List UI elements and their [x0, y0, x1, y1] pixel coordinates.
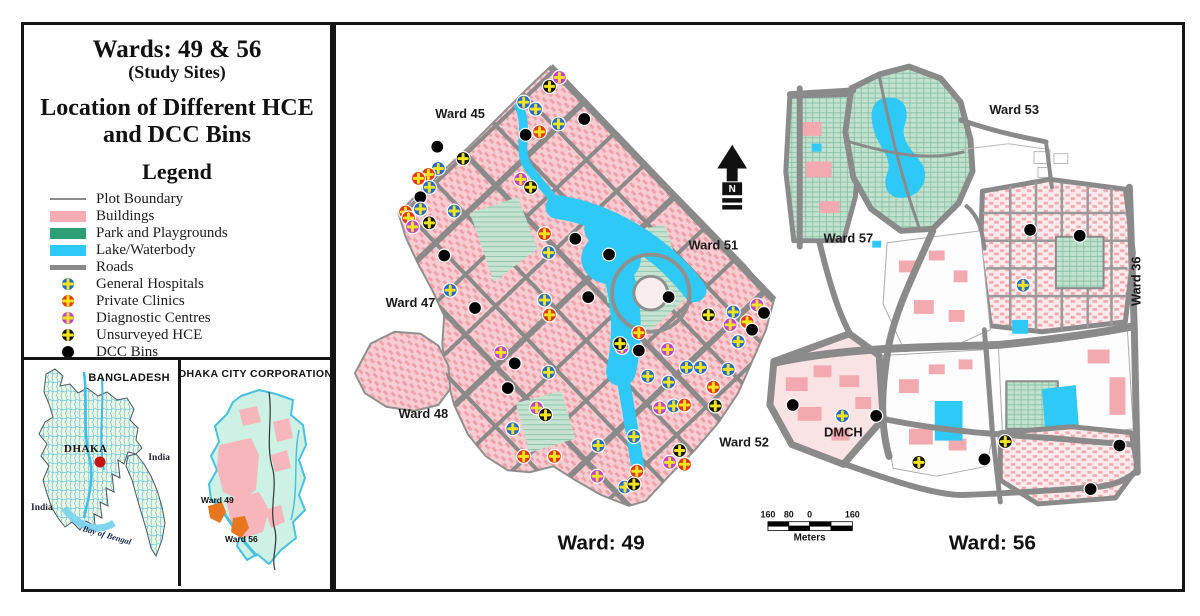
map-marker-uh: [912, 455, 926, 469]
map-marker-bin: [519, 128, 532, 141]
map-label: Ward 57: [824, 231, 874, 246]
legend-swatch-marker: [40, 276, 96, 292]
map-marker-dc: [663, 455, 677, 469]
map-marker-bin: [786, 399, 799, 412]
ward49-caption: Ward: 49: [558, 531, 645, 554]
map-marker-gh: [542, 246, 556, 260]
legend-heading: Legend: [24, 159, 330, 185]
map-marker-pc: [630, 464, 644, 478]
right-small-pond: [1012, 320, 1028, 334]
map-marker-bin: [578, 113, 591, 126]
map-marker-pc: [678, 457, 692, 471]
map-marker-gh: [443, 283, 457, 297]
india-label-right: India: [148, 453, 170, 463]
map-marker-dc: [661, 343, 675, 357]
map-marker-dc: [723, 318, 737, 332]
map-marker-gh: [529, 102, 543, 116]
north-arrow: N: [717, 145, 747, 210]
title-block: Wards: 49 & 56 (Study Sites) Location of…: [24, 37, 330, 185]
inset-dhaka-city: DHAKA CITY CORPORATION Ward 49 Ward 56: [181, 360, 330, 586]
crescent-road-inner: [634, 276, 668, 310]
legend-item: Lake/Waterbody: [24, 242, 330, 259]
map-marker-bin: [662, 291, 675, 304]
legend-label: Roads: [96, 259, 134, 276]
legend-item: Plot Boundary: [24, 191, 330, 208]
map-marker-pc: [533, 125, 547, 139]
map-marker-gh: [693, 360, 707, 374]
map-marker-gh: [641, 369, 655, 383]
legend-item: Buildings: [24, 208, 330, 225]
legend-item: Diagnostic Centres: [24, 310, 330, 327]
map-marker-bin: [582, 291, 595, 304]
map-label: DMCH: [824, 425, 863, 440]
map-marker-pc: [706, 380, 720, 394]
map-marker-uh: [524, 180, 538, 194]
map-marker-pc: [543, 308, 557, 322]
india-label-left: India: [31, 503, 53, 513]
legend-label: Lake/Waterbody: [96, 242, 196, 259]
legend-label: Buildings: [96, 208, 154, 225]
bangladesh-title: BANGLADESH: [88, 372, 170, 384]
map-marker-pc: [632, 326, 646, 340]
scalebar-tick: 80: [784, 510, 794, 520]
map-marker-uh: [422, 216, 436, 230]
map-marker-uh: [708, 399, 722, 413]
map-figure: Wards: 49 & 56 (Study Sites) Location of…: [0, 0, 1200, 616]
map-marker-pc: [678, 398, 692, 412]
map-marker-uh: [701, 308, 715, 322]
map-marker-gh: [591, 439, 605, 453]
legend-label: Park and Playgrounds: [96, 225, 228, 242]
legend-label: Plot Boundary: [96, 191, 183, 208]
inset-ward49-label: Ward 49: [201, 495, 234, 505]
map-marker-gh: [542, 365, 556, 379]
legend-label: General Hospitals: [96, 276, 204, 293]
scalebar-unit: Meters: [794, 533, 826, 544]
map-panel: N 160800160Meters Ward 45Ward 47Ward 48W…: [333, 22, 1185, 592]
map-label: Ward 36: [1128, 257, 1143, 307]
map-label: Ward 47: [386, 295, 436, 310]
legend-swatch-road: [40, 265, 96, 270]
mid-white-block: [883, 231, 990, 352]
map-marker-bin: [431, 140, 444, 153]
legend-swatch-rect: [40, 245, 96, 256]
map-marker-uh: [613, 337, 627, 351]
legend-swatch-marker: [40, 310, 96, 326]
map-marker-gh: [447, 204, 461, 218]
map-marker-bin: [632, 344, 645, 357]
dcc-title: DHAKA CITY CORPORATION: [179, 368, 333, 380]
map-label: Ward 51: [688, 238, 738, 253]
legend-label: Private Clinics: [96, 293, 185, 310]
map-marker-dc: [494, 346, 508, 360]
inset-ward56-label: Ward 56: [225, 534, 258, 544]
map-marker-gh: [680, 360, 694, 374]
mid-small-pond: [872, 241, 881, 248]
map-marker-gh: [538, 293, 552, 307]
map-label: Ward 45: [435, 106, 485, 121]
map-marker-bin: [758, 307, 771, 320]
map-marker-dc: [552, 71, 566, 85]
inset-maps: BANGLADESH DHAKA India India Bay of Beng…: [24, 357, 330, 589]
legend-list: Plot BoundaryBuildingsPark and Playgroun…: [24, 191, 330, 361]
map-marker-gh: [731, 335, 745, 349]
legend-item: Roads: [24, 259, 330, 276]
ward57-pond: [812, 144, 822, 152]
legend-label: Diagnostic Centres: [96, 310, 211, 327]
legend-item: Private Clinics: [24, 293, 330, 310]
map-marker-bin: [1084, 483, 1097, 496]
map-marker-uh: [456, 152, 470, 166]
ne-park-patch: [1056, 237, 1104, 288]
legend-swatch-thinline: [40, 198, 96, 200]
map-label: Ward 52: [719, 435, 769, 450]
map-marker-gh: [721, 362, 735, 376]
legend-swatch-rect: [40, 211, 96, 222]
map-marker-uh: [998, 435, 1012, 449]
map-marker-bin: [1113, 439, 1126, 452]
map-marker-bin: [508, 357, 521, 370]
map-marker-dc: [653, 401, 667, 415]
map-marker-pc: [517, 449, 531, 463]
ward48-block: [355, 332, 450, 411]
map-marker-gh: [662, 375, 676, 389]
map-marker-bin: [603, 248, 616, 261]
map-marker-uh: [539, 408, 553, 422]
map-marker-bin: [469, 302, 482, 315]
map-marker-bin: [1024, 223, 1037, 236]
map-marker-bin: [746, 323, 759, 336]
figure-title: Wards: 49 & 56: [24, 37, 330, 63]
map-marker-gh: [1016, 278, 1030, 292]
map-marker-uh: [673, 444, 687, 458]
dhaka-label: DHAKA: [64, 443, 107, 455]
figure-subtitle: (Study Sites): [24, 63, 330, 83]
map-marker-gh: [551, 117, 565, 131]
map-label: Ward 53: [989, 102, 1039, 117]
map-marker-dc: [406, 220, 420, 234]
inset-bangladesh: BANGLADESH DHAKA India India Bay of Beng…: [24, 360, 181, 586]
legend-panel: Wards: 49 & 56 (Study Sites) Location of…: [21, 22, 333, 592]
dcc-map: [181, 360, 330, 586]
legend-swatch-rect: [40, 228, 96, 239]
map-marker-gh: [726, 305, 740, 319]
map-label: Ward 48: [399, 406, 449, 421]
map-marker-bin: [870, 409, 883, 422]
bangladesh-map: [24, 360, 178, 586]
wards-map: N 160800160Meters Ward 45Ward 47Ward 48W…: [336, 25, 1182, 589]
dhaka-dot: [95, 457, 106, 468]
map-marker-uh: [627, 477, 641, 491]
map-marker-pc: [548, 449, 562, 463]
map-marker-dc: [590, 469, 604, 483]
legend-item: Unsurveyed HCE: [24, 327, 330, 344]
bangladesh-southeast-tail: [126, 454, 165, 556]
map-marker-bin: [978, 453, 991, 466]
map-marker-gh: [413, 202, 427, 216]
ward56-caption: Ward: 56: [949, 531, 1036, 554]
map-marker-bin: [569, 232, 582, 245]
scalebar-tick: 160: [845, 510, 860, 520]
figure-title-2: Location of Different HCE and DCC Bins: [37, 95, 317, 149]
map-marker-gh: [506, 422, 520, 436]
map-marker-bin: [501, 382, 514, 395]
map-marker-gh: [835, 409, 849, 423]
scale-bar: 160800160Meters: [760, 510, 859, 544]
north-letter: N: [729, 184, 736, 195]
map-marker-bin: [1073, 229, 1086, 242]
center-lake: [935, 401, 963, 441]
map-marker-bin: [438, 249, 451, 262]
legend-item: General Hospitals: [24, 276, 330, 293]
map-marker-pc: [538, 227, 552, 241]
scalebar-tick: 0: [807, 510, 812, 520]
legend-swatch-marker: [40, 327, 96, 343]
map-marker-gh: [627, 430, 641, 444]
legend-label: Unsurveyed HCE: [96, 327, 202, 344]
legend-item: Park and Playgrounds: [24, 225, 330, 242]
scalebar-tick: 160: [760, 510, 775, 520]
legend-swatch-marker: [40, 293, 96, 309]
